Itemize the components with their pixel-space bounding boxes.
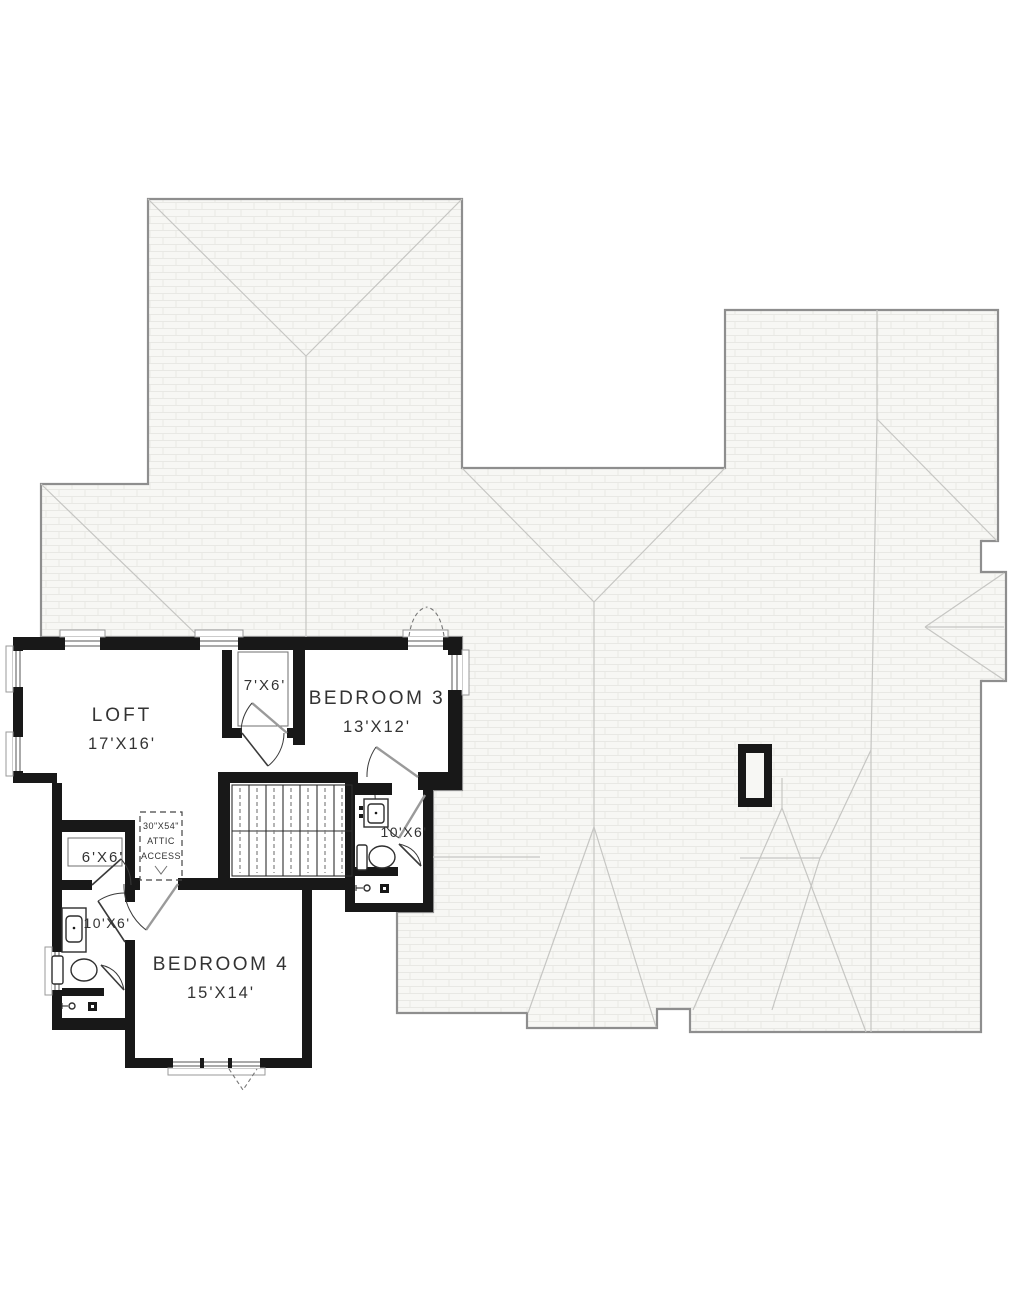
attic-size-label: 30"X54" <box>143 821 179 831</box>
floor-plan: 30"X54" ATTIC ACCESS <box>6 607 469 1090</box>
bedroom3-label: BEDROOM 3 <box>309 688 446 709</box>
window <box>6 732 23 776</box>
bath-left-dims: 10'X6' <box>83 915 130 931</box>
window <box>6 646 23 692</box>
closet-upper-dims: 7'X6' <box>244 677 286 694</box>
window <box>60 630 105 650</box>
window <box>168 1058 265 1075</box>
bedroom4-dims: 15'X14' <box>187 984 255 1002</box>
bath-right-dims: 10'X6' <box>380 824 427 840</box>
attic-access-label: ACCESS <box>141 851 181 861</box>
window <box>448 650 469 695</box>
toilet-icon <box>357 845 395 870</box>
floor-plan-page: 30"X54" ATTIC ACCESS <box>0 0 1025 1300</box>
loft-dims: 17'X16' <box>88 735 156 753</box>
window <box>195 630 243 650</box>
sink-icon <box>359 799 388 827</box>
tub-drain-icon <box>88 1002 97 1011</box>
chimney-icon <box>738 744 772 807</box>
bedroom4-label: BEDROOM 4 <box>153 954 290 975</box>
loft-label: LOFT <box>92 705 153 726</box>
floor-plan-drawing: 30"X54" ATTIC ACCESS <box>0 0 1025 1300</box>
closet-lower-dims: 6'X6' <box>82 849 124 866</box>
attic-label: ATTIC <box>147 836 175 846</box>
sink-icon <box>57 908 86 952</box>
bedroom3-dims: 13'X12' <box>343 718 411 736</box>
tub-drain-icon <box>380 884 389 893</box>
